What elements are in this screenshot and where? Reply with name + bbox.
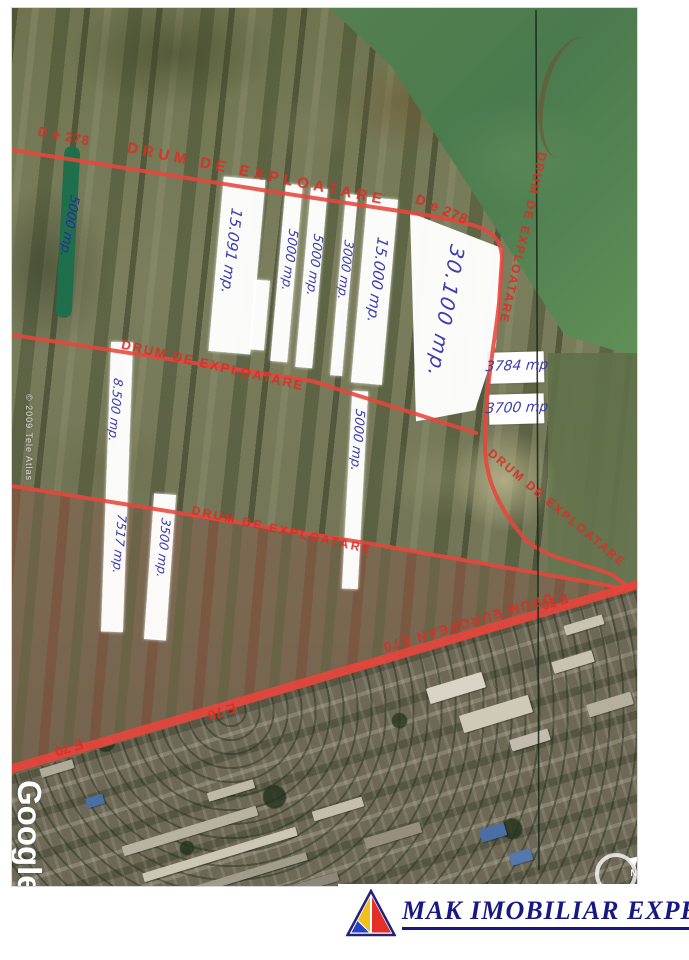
building [39, 759, 74, 778]
company-logo-icon [346, 889, 396, 937]
copyright-watermark: © 2009 Tele Atlas [24, 394, 34, 481]
building [563, 614, 604, 635]
area-label-3700: 3700 mp [485, 400, 549, 416]
google-watermark: Google [12, 780, 48, 886]
area-label-3784: 3784 mp [485, 358, 549, 374]
building [257, 872, 340, 886]
building [551, 650, 595, 674]
parcel-label-3000: 3000 mp. [335, 239, 355, 301]
road-label-de278-left: D e 278 [37, 125, 91, 148]
building [312, 797, 365, 822]
building [364, 822, 423, 849]
road-label-right-diagonal: DRUM DE EXPLOATARE [486, 447, 628, 569]
building [426, 672, 486, 704]
road-label-e70-west: E 70 [53, 737, 85, 759]
road-label-right-vertical: DRUM DE EXPLOATARE [497, 151, 548, 325]
north-arrow-icon [628, 853, 637, 866]
satellite-photo: D e 278 DRUM DE EXPLOATARE D e 278 DRUM … [12, 8, 637, 886]
roads-overlay [12, 8, 637, 886]
company-name: MAK IMOBILIAR EXPERT [402, 896, 689, 930]
compass-north-label: N [631, 868, 638, 878]
building-blue-roof [85, 794, 105, 809]
building [207, 779, 256, 802]
building [459, 695, 533, 733]
building-blue-roof [509, 848, 534, 866]
clearing-area [452, 428, 557, 533]
building [509, 728, 551, 751]
compass-icon: N [595, 853, 637, 886]
building-blue-roof [479, 822, 508, 842]
road-label-e70-mid: E 70 [206, 701, 238, 723]
terrain-blotches [12, 8, 637, 886]
building [586, 692, 634, 718]
scanned-map-page: D e 278 DRUM DE EXPLOATARE D e 278 DRUM … [0, 0, 689, 960]
dirt-path [528, 31, 618, 167]
farmland-texture [12, 8, 637, 886]
road-label-drum-european: DRUM EUROPEAN E70 [380, 592, 553, 655]
